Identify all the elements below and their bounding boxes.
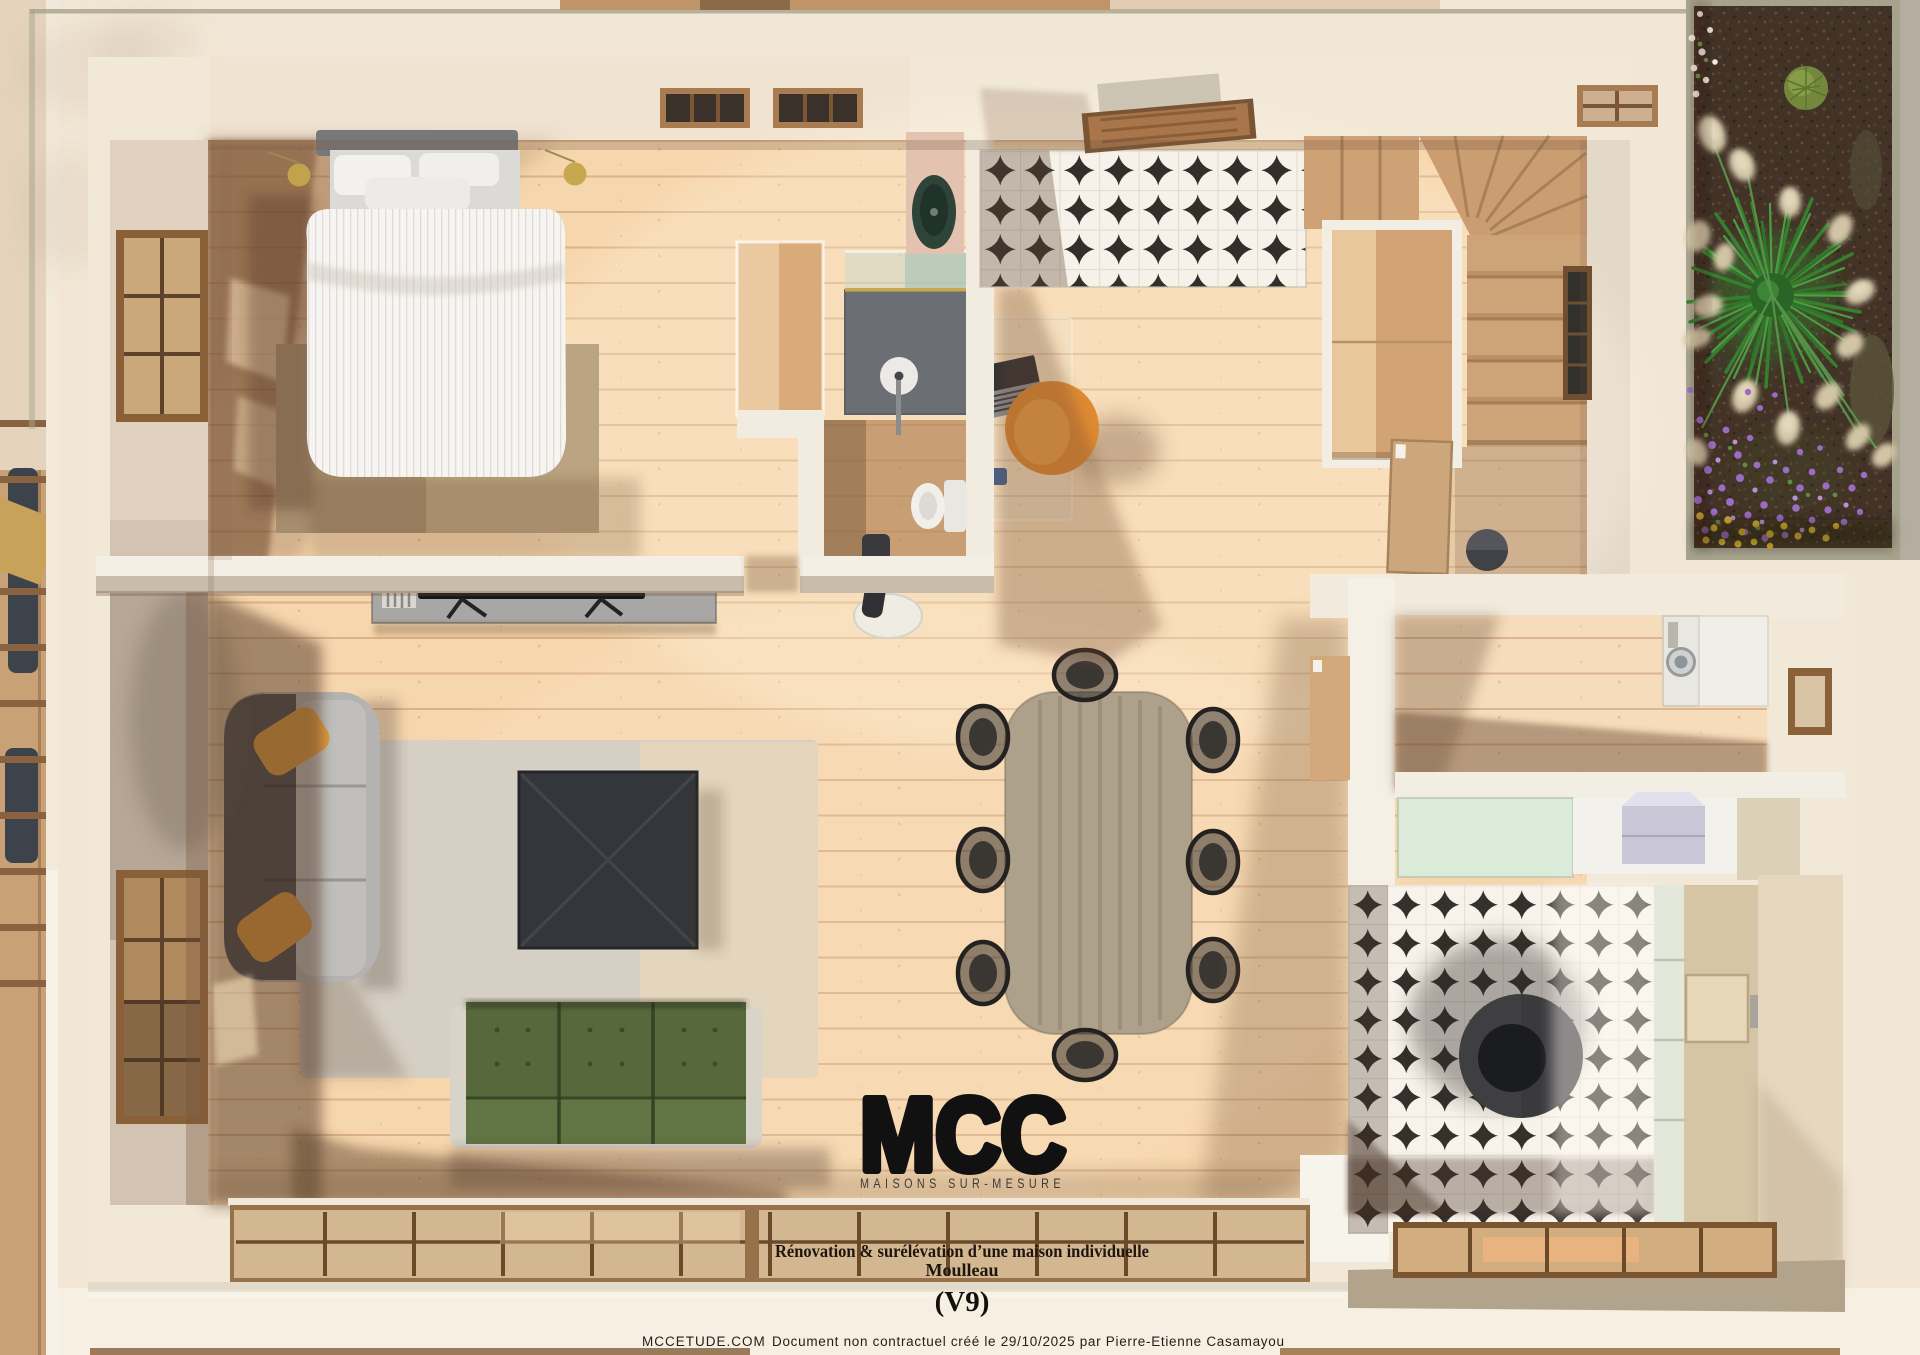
- svg-text:MAISONS SUR-MESURE: MAISONS SUR-MESURE: [860, 1176, 1065, 1191]
- svg-text:MCC: MCC: [860, 1077, 1066, 1192]
- svg-text:MCCETUDE.COM: MCCETUDE.COM: [642, 1334, 766, 1349]
- svg-text:Moulleau: Moulleau: [925, 1260, 998, 1280]
- svg-text:Document non contractuel créé: Document non contractuel créé le 29/10/2…: [772, 1334, 1285, 1349]
- svg-text:(V9): (V9): [935, 1286, 990, 1318]
- svg-text:Rénovation & surélévation d’un: Rénovation & surélévation d’une maison i…: [775, 1241, 1149, 1261]
